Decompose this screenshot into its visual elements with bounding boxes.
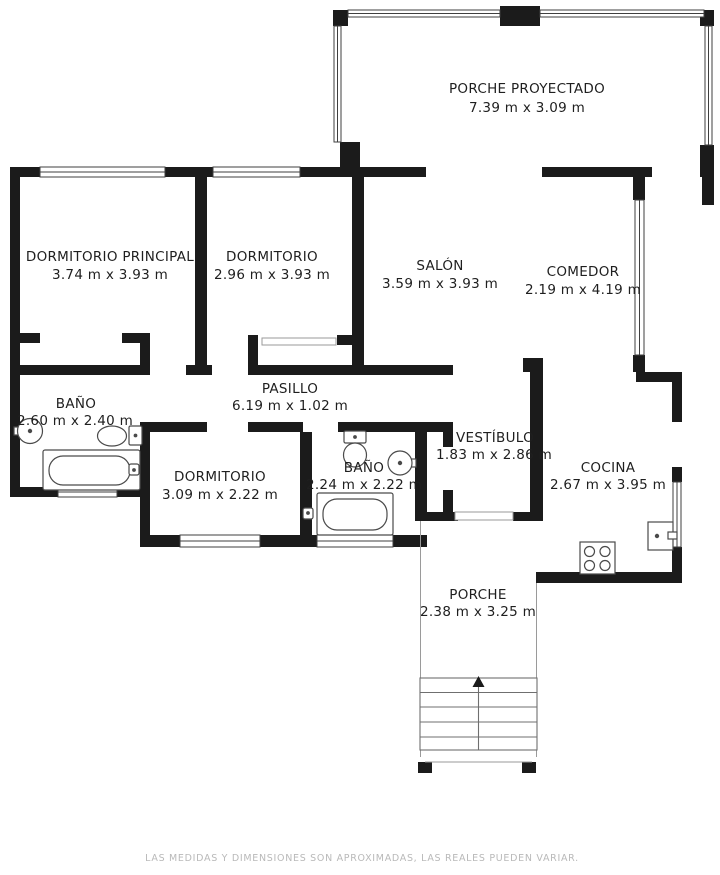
wall xyxy=(633,355,645,372)
room-dims-dormitorio-2: 2.96 m x 3.93 m xyxy=(214,267,330,283)
wall xyxy=(10,333,40,343)
window-icon xyxy=(635,200,644,355)
wall xyxy=(140,333,150,375)
room-dims-vestibulo: 1.83 m x 2.86 m xyxy=(436,447,552,463)
wall xyxy=(672,382,682,422)
wall xyxy=(248,365,362,375)
toilet-icon xyxy=(98,426,143,446)
wall xyxy=(333,10,348,26)
wall xyxy=(702,167,714,205)
room-label-pasillo: PASILLO xyxy=(262,381,318,397)
room-dims-porche-proyectado: 7.39 m x 3.09 m xyxy=(469,100,585,116)
room-dims-pasillo: 6.19 m x 1.02 m xyxy=(232,398,348,414)
wall xyxy=(500,6,540,26)
room-dims-bano-2: 2.24 m x 2.22 m xyxy=(306,477,422,493)
wall xyxy=(352,365,453,375)
room-label-vestibulo: VESTÍBULO xyxy=(456,429,534,446)
room-label-dormitorio-2: DORMITORIO xyxy=(226,249,318,265)
wall xyxy=(542,167,652,177)
floorplan-page: PORCHE PROYECTADO 7.39 m x 3.09 m DORMIT… xyxy=(0,0,720,875)
room-dims-salon: 3.59 m x 3.93 m xyxy=(382,276,498,292)
wall xyxy=(165,167,213,177)
wall xyxy=(140,535,180,547)
sink-icon xyxy=(388,451,416,475)
room-dims-dormitorio-3: 3.09 m x 2.22 m xyxy=(162,487,278,503)
wall xyxy=(248,422,303,432)
wall xyxy=(633,177,645,200)
wall xyxy=(415,422,427,521)
room-dims-dormitorio-principal: 3.74 m x 3.93 m xyxy=(52,267,168,283)
window-icon xyxy=(213,167,300,177)
window-icon xyxy=(317,535,393,547)
room-label-cocina: COCINA xyxy=(581,460,636,476)
room-label-dormitorio-principal: DORMITORIO PRINCIPAL xyxy=(26,249,194,265)
porch-glazing-icon xyxy=(705,26,712,145)
porch-post xyxy=(418,762,432,773)
window-icon xyxy=(40,167,165,177)
porch-glazing-icon xyxy=(348,10,500,17)
wall xyxy=(300,167,426,177)
room-label-comedor: COMEDOR xyxy=(547,264,620,280)
wall xyxy=(140,422,207,432)
wall xyxy=(672,467,682,482)
room-dims-bano-1: 2.60 m x 2.40 m xyxy=(17,413,133,429)
wall xyxy=(415,512,458,521)
room-dims-cocina: 2.67 m x 3.95 m xyxy=(550,477,666,493)
room-label-dormitorio-3: DORMITORIO xyxy=(174,469,266,485)
room-label-porche: PORCHE xyxy=(449,587,506,603)
wall xyxy=(260,535,317,547)
stairs xyxy=(420,676,537,750)
walls xyxy=(10,6,714,773)
wall xyxy=(10,365,140,375)
disclaimer-text: LAS MEDIDAS Y DIMENSIONES SON APROXIMADA… xyxy=(145,853,579,864)
stove-icon xyxy=(580,542,615,574)
porch-post xyxy=(522,762,536,773)
fridge-icon xyxy=(648,522,677,550)
porch-glazing-icon xyxy=(540,10,704,17)
room-label-bano-1: BAÑO xyxy=(56,395,96,412)
room-dims-comedor: 2.19 m x 4.19 m xyxy=(525,282,641,298)
wall xyxy=(352,177,364,375)
wall xyxy=(443,422,453,447)
wall xyxy=(195,177,207,365)
room-label-bano-2: BAÑO xyxy=(344,459,384,476)
room-dims-porche: 2.38 m x 3.25 m xyxy=(420,604,536,620)
floorplan-drawing: PORCHE PROYECTADO 7.39 m x 3.09 m DORMIT… xyxy=(0,0,720,875)
wall xyxy=(10,167,20,497)
door-threshold xyxy=(262,338,336,345)
window-icon xyxy=(180,535,260,547)
room-label-porche-proyectado: PORCHE PROYECTADO xyxy=(449,81,605,97)
wall xyxy=(340,142,360,169)
bathtub-icon xyxy=(43,450,140,490)
porch-glazing-icon xyxy=(334,26,341,142)
door-threshold xyxy=(455,512,513,520)
wall xyxy=(636,372,682,382)
wall xyxy=(393,535,427,547)
room-label-salon: SALÓN xyxy=(416,256,463,274)
wall xyxy=(672,547,682,573)
wall xyxy=(186,365,212,375)
bathtub-icon xyxy=(303,493,393,535)
